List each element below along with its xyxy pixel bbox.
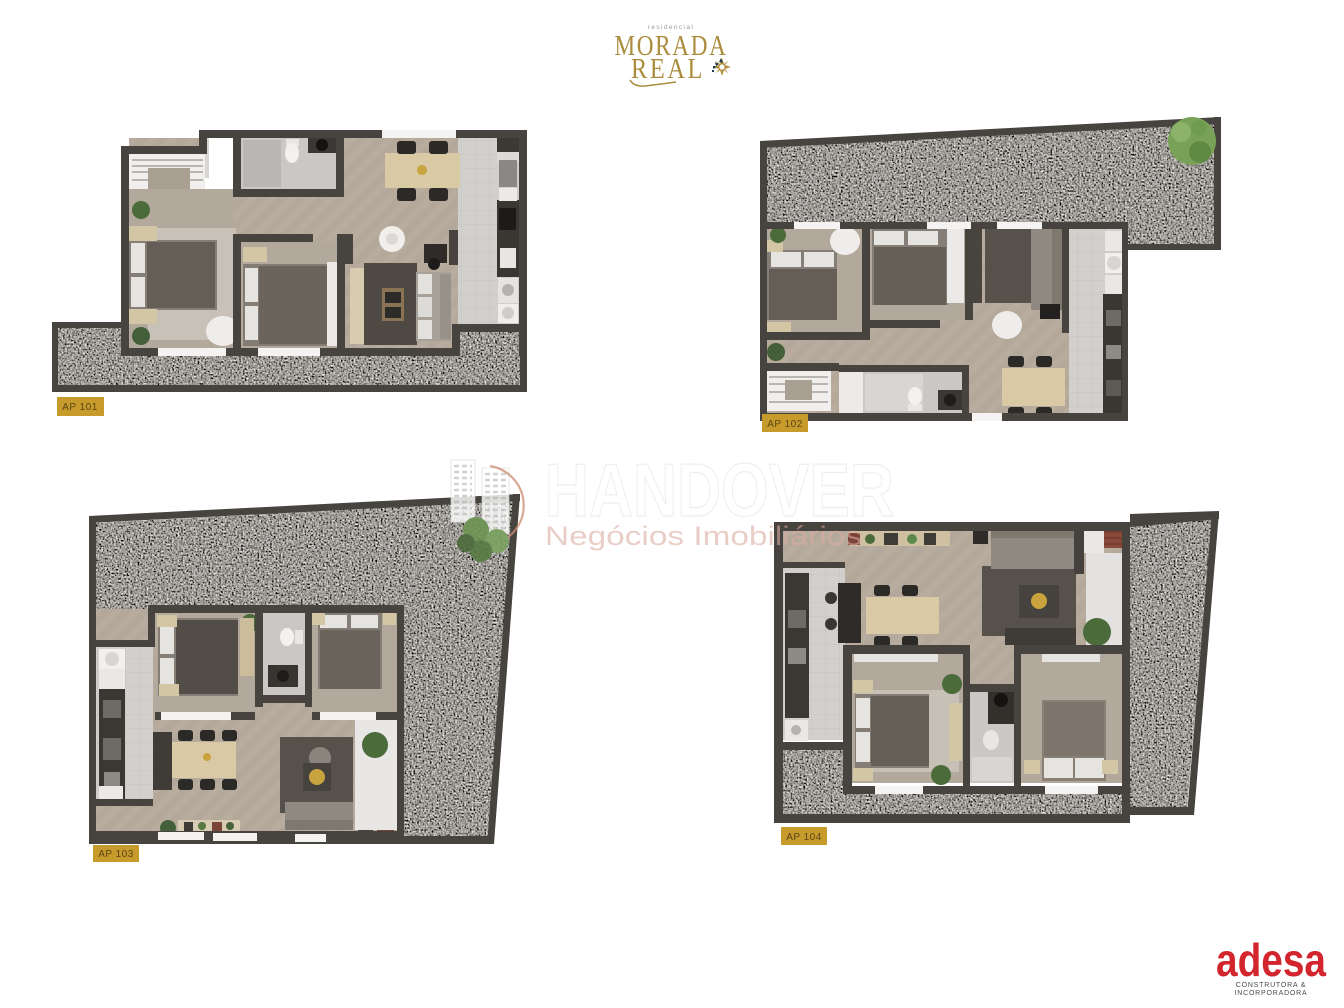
svg-text:AP 102: AP 102 (767, 419, 803, 430)
svg-text:REAL: REAL (631, 54, 705, 85)
svg-text:AP 103: AP 103 (98, 849, 134, 860)
svg-text:AP 104: AP 104 (786, 832, 822, 843)
svg-text:CONSTRUTORA &: CONSTRUTORA & (1236, 982, 1307, 989)
svg-text:adesa: adesa (1216, 934, 1326, 986)
svg-text:AP 101: AP 101 (62, 402, 98, 413)
svg-text:Negócios Imobiliários: Negócios Imobiliários (545, 521, 862, 551)
svg-text:residencial: residencial (648, 24, 694, 31)
svg-text:HANDOVER: HANDOVER (545, 448, 894, 532)
svg-text:INCORPORADORA: INCORPORADORA (1234, 990, 1307, 997)
